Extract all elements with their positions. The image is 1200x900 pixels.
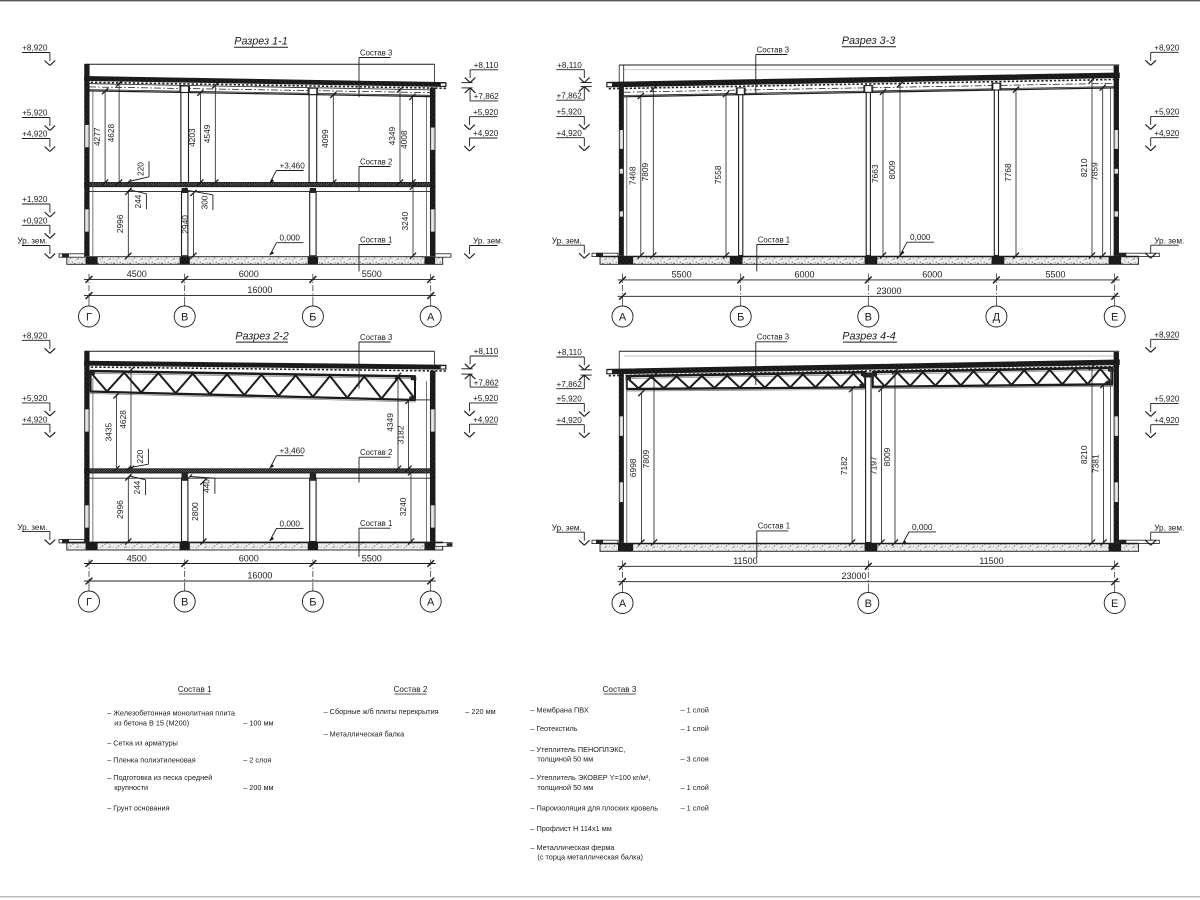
svg-text:Ур. зем.: Ур. зем. xyxy=(1154,236,1184,245)
svg-text:2996: 2996 xyxy=(115,500,125,519)
svg-text:4349: 4349 xyxy=(387,126,397,145)
svg-text:Ур. зем.: Ур. зем. xyxy=(552,523,582,532)
svg-text:– Металлическая балка: – Металлическая балка xyxy=(324,730,406,739)
svg-text:– 200 мм: – 200 мм xyxy=(243,783,273,792)
svg-text:толщиной 50 мм: толщиной 50 мм xyxy=(537,755,593,764)
svg-text:6000: 6000 xyxy=(239,553,259,563)
svg-text:+8,110: +8,110 xyxy=(557,61,582,70)
svg-text:0,000: 0,000 xyxy=(912,523,933,532)
svg-text:6000: 6000 xyxy=(794,270,814,280)
svg-text:Состав 1: Состав 1 xyxy=(758,235,790,244)
svg-text:– 220 мм: – 220 мм xyxy=(465,707,495,716)
svg-text:Состав 3: Состав 3 xyxy=(360,48,392,57)
svg-text:2996: 2996 xyxy=(115,214,125,233)
svg-text:Е: Е xyxy=(1111,311,1118,323)
svg-text:11500: 11500 xyxy=(979,556,1003,566)
svg-text:7182: 7182 xyxy=(839,456,849,475)
svg-text:+3,460: +3,460 xyxy=(280,447,306,456)
svg-text:4349: 4349 xyxy=(385,413,395,432)
svg-text:16000: 16000 xyxy=(247,571,272,581)
svg-text:– Пароизоляция для плоских кро: – Пароизоляция для плоских кровель xyxy=(530,803,658,812)
svg-text:+5,920: +5,920 xyxy=(22,394,48,403)
svg-text:+4,920: +4,920 xyxy=(22,130,48,139)
svg-text:(с торца металлическая балка): (с торца металлическая балка) xyxy=(537,853,643,862)
svg-text:А: А xyxy=(427,596,435,608)
svg-text:23000: 23000 xyxy=(841,571,866,581)
svg-text:0,000: 0,000 xyxy=(280,519,301,528)
svg-text:– 3 слоя: – 3 слоя xyxy=(681,755,709,764)
svg-text:11500: 11500 xyxy=(733,556,757,566)
svg-text:Б: Б xyxy=(309,311,316,323)
svg-text:Состав 3: Состав 3 xyxy=(360,333,392,342)
svg-text:+4,920: +4,920 xyxy=(557,129,583,138)
svg-text:Г: Г xyxy=(86,596,92,608)
svg-text:6998: 6998 xyxy=(628,458,638,477)
svg-text:+8,110: +8,110 xyxy=(474,347,499,356)
svg-text:Разрез 4-4: Разрез 4-4 xyxy=(842,330,896,342)
svg-text:Состав 3: Состав 3 xyxy=(757,45,789,54)
svg-text:– 2 слоя: – 2 слоя xyxy=(243,756,271,765)
svg-text:7663: 7663 xyxy=(870,164,880,183)
svg-text:4008: 4008 xyxy=(399,130,409,149)
svg-text:+8,110: +8,110 xyxy=(557,348,582,357)
svg-text:5500: 5500 xyxy=(1045,270,1065,280)
svg-text:7809: 7809 xyxy=(640,162,650,181)
svg-text:Состав 1: Состав 1 xyxy=(360,235,392,244)
svg-text:– Пленка полиэтиленовая: – Пленка полиэтиленовая xyxy=(107,756,196,765)
svg-text:+8,920: +8,920 xyxy=(1154,44,1180,53)
svg-text:– 1 слой: – 1 слой xyxy=(681,803,709,812)
svg-text:Ур. зем.: Ур. зем. xyxy=(1154,523,1184,532)
svg-text:Состав 1: Состав 1 xyxy=(178,685,212,694)
svg-text:4628: 4628 xyxy=(106,123,116,142)
svg-text:3240: 3240 xyxy=(400,212,410,231)
svg-text:– 100 мм: – 100 мм xyxy=(243,718,273,727)
svg-text:А: А xyxy=(619,311,627,323)
svg-text:из бетона В 15 (М200): из бетона В 15 (М200) xyxy=(114,718,189,727)
svg-text:+4,920: +4,920 xyxy=(473,415,499,424)
svg-text:7197: 7197 xyxy=(868,456,878,475)
svg-text:244: 244 xyxy=(133,480,142,494)
svg-text:4500: 4500 xyxy=(127,553,147,563)
svg-text:– Сетка из арматуры: – Сетка из арматуры xyxy=(107,738,178,747)
svg-text:+8,920: +8,920 xyxy=(22,44,48,53)
svg-text:8210: 8210 xyxy=(1079,445,1089,464)
svg-text:3240: 3240 xyxy=(398,497,408,516)
svg-text:8009: 8009 xyxy=(887,160,897,179)
svg-text:5500: 5500 xyxy=(672,270,692,280)
svg-text:+4,920: +4,920 xyxy=(557,416,583,425)
svg-text:4500: 4500 xyxy=(127,269,147,279)
svg-text:0,000: 0,000 xyxy=(280,234,301,243)
svg-text:Состав 3: Состав 3 xyxy=(757,333,789,342)
svg-text:+8,920: +8,920 xyxy=(22,332,48,341)
svg-text:– Мембрана ПВХ: – Мембрана ПВХ xyxy=(530,705,588,714)
svg-text:6000: 6000 xyxy=(922,270,942,280)
svg-text:Ур. зем.: Ур. зем. xyxy=(473,237,503,246)
svg-text:Б: Б xyxy=(309,596,316,608)
svg-text:Разрез 3-3: Разрез 3-3 xyxy=(842,35,896,47)
svg-text:220: 220 xyxy=(137,162,146,176)
svg-text:5500: 5500 xyxy=(362,269,382,279)
svg-text:Ур. зем.: Ур. зем. xyxy=(17,523,47,532)
svg-text:3435: 3435 xyxy=(103,422,113,441)
svg-text:Состав 1: Состав 1 xyxy=(360,519,392,528)
svg-text:4628: 4628 xyxy=(118,410,128,429)
svg-text:+5,920: +5,920 xyxy=(22,109,48,118)
svg-text:– Утеплитель ЭКОВЕР Y=100 кг/м: – Утеплитель ЭКОВЕР Y=100 кг/м³, xyxy=(530,773,650,782)
svg-text:4277: 4277 xyxy=(92,127,102,146)
svg-text:крупности: крупности xyxy=(114,783,148,792)
svg-text:Разрез 2-2: Разрез 2-2 xyxy=(235,330,289,342)
svg-text:– Профлист Н 114х1 мм: – Профлист Н 114х1 мм xyxy=(530,824,611,833)
svg-text:4203: 4203 xyxy=(187,128,197,147)
svg-text:В: В xyxy=(865,598,872,610)
svg-text:+1,920: +1,920 xyxy=(22,195,48,204)
svg-text:Состав 3: Состав 3 xyxy=(603,685,637,694)
svg-text:Состав 2: Состав 2 xyxy=(360,448,392,457)
svg-text:– 1 слой: – 1 слой xyxy=(681,783,709,792)
svg-text:– Сборные ж/б плиты перекрытия: – Сборные ж/б плиты перекрытия xyxy=(324,707,439,716)
svg-text:3182: 3182 xyxy=(395,425,405,444)
svg-text:+7,862: +7,862 xyxy=(557,91,583,100)
svg-text:7809: 7809 xyxy=(641,449,651,468)
svg-text:В: В xyxy=(865,311,872,323)
svg-text:В: В xyxy=(181,596,188,608)
svg-text:+5,920: +5,920 xyxy=(1154,395,1180,404)
svg-text:– Подготовка из песка средней: – Подготовка из песка средней xyxy=(107,773,212,782)
svg-text:4099: 4099 xyxy=(320,129,330,148)
svg-text:толщиной 50 мм: толщиной 50 мм xyxy=(537,783,593,792)
svg-text:– 1 слой: – 1 слой xyxy=(681,705,709,714)
svg-text:Ур. зем.: Ур. зем. xyxy=(17,237,47,246)
svg-text:+7,862: +7,862 xyxy=(474,378,500,387)
svg-text:– Грунт основания: – Грунт основания xyxy=(107,803,169,812)
svg-text:– Металлическая ферма: – Металлическая ферма xyxy=(530,843,615,852)
svg-text:+4,920: +4,920 xyxy=(1154,416,1180,425)
svg-text:+5,920: +5,920 xyxy=(1154,108,1180,117)
svg-text:Б: Б xyxy=(737,311,744,323)
svg-text:440: 440 xyxy=(203,479,212,493)
svg-text:7558: 7558 xyxy=(713,165,723,184)
svg-text:6000: 6000 xyxy=(239,269,259,279)
svg-text:Состав 2: Состав 2 xyxy=(360,157,392,166)
svg-text:2800: 2800 xyxy=(190,502,200,521)
svg-text:5500: 5500 xyxy=(362,553,382,563)
svg-text:7468: 7468 xyxy=(628,166,638,185)
svg-text:8210: 8210 xyxy=(1079,158,1089,177)
svg-text:+5,920: +5,920 xyxy=(473,394,499,403)
svg-text:23000: 23000 xyxy=(877,286,902,296)
svg-text:7768: 7768 xyxy=(1003,163,1013,182)
svg-text:А: А xyxy=(427,311,435,323)
svg-text:– Геотекстиль: – Геотекстиль xyxy=(530,724,577,733)
svg-text:В: В xyxy=(181,311,188,323)
svg-text:2940: 2940 xyxy=(180,215,190,234)
svg-text:8009: 8009 xyxy=(882,447,892,466)
svg-text:244: 244 xyxy=(134,194,143,208)
svg-text:0,000: 0,000 xyxy=(910,233,931,242)
svg-text:Разрез 1-1: Разрез 1-1 xyxy=(234,36,288,48)
svg-text:Е: Е xyxy=(1111,598,1118,610)
svg-text:16000: 16000 xyxy=(247,285,272,295)
svg-text:Состав 1: Состав 1 xyxy=(758,522,790,531)
svg-text:+7,862: +7,862 xyxy=(474,92,500,101)
svg-text:7381: 7381 xyxy=(1090,454,1100,473)
svg-text:+8,110: +8,110 xyxy=(474,61,499,70)
svg-text:– Утеплитель ПЕНОПЛЭКС,: – Утеплитель ПЕНОПЛЭКС, xyxy=(530,745,625,754)
svg-text:– Железобетонная монолитная п: – Железобетонная монолитная плита xyxy=(107,709,236,718)
svg-text:220: 220 xyxy=(136,449,145,463)
svg-text:Состав 2: Состав 2 xyxy=(394,685,428,694)
svg-text:+4,920: +4,920 xyxy=(22,415,48,424)
svg-text:+0,920: +0,920 xyxy=(22,217,48,226)
svg-text:4549: 4549 xyxy=(202,124,212,143)
svg-text:300: 300 xyxy=(201,195,210,209)
svg-text:+4,920: +4,920 xyxy=(473,129,499,138)
svg-text:– 1 слой: – 1 слой xyxy=(681,724,709,733)
svg-text:Г: Г xyxy=(86,311,92,323)
svg-text:+5,920: +5,920 xyxy=(557,395,583,404)
svg-text:А: А xyxy=(619,598,627,610)
svg-text:+8,920: +8,920 xyxy=(1154,331,1180,340)
svg-text:Д: Д xyxy=(993,311,1001,323)
svg-text:+5,920: +5,920 xyxy=(473,108,499,117)
svg-text:+4,920: +4,920 xyxy=(1154,129,1180,138)
svg-text:7859: 7859 xyxy=(1090,162,1100,181)
svg-text:+7,862: +7,862 xyxy=(557,380,583,389)
svg-text:Ур. зем.: Ур. зем. xyxy=(552,236,582,245)
svg-text:+3,460: +3,460 xyxy=(280,162,306,171)
svg-text:+5,920: +5,920 xyxy=(557,108,583,117)
